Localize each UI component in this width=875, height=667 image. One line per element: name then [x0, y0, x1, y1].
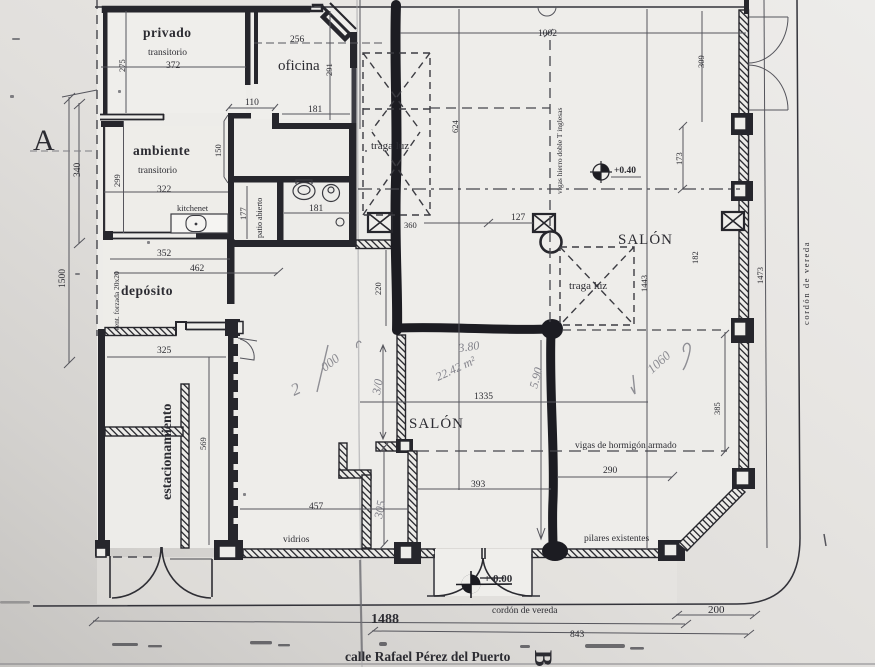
svg-text:transitorio: transitorio — [148, 48, 187, 58]
svg-text:127: 127 — [511, 213, 526, 223]
svg-text:ambiente: ambiente — [133, 143, 190, 158]
svg-text:estacionamiento: estacionamiento — [160, 404, 175, 500]
svg-text:322: 322 — [157, 185, 172, 195]
svg-text:309: 309 — [696, 55, 706, 68]
svg-text:256: 256 — [290, 35, 305, 45]
svg-text:vent. forzada 20x20: vent. forzada 20x20 — [112, 271, 121, 331]
svg-text:A: A — [33, 124, 55, 157]
svg-text:393: 393 — [471, 480, 486, 490]
svg-text:457: 457 — [309, 502, 324, 512]
svg-text:+ 0.00: + 0.00 — [484, 573, 513, 585]
svg-text:624: 624 — [450, 120, 460, 134]
svg-text:291: 291 — [324, 63, 334, 76]
svg-text:patio abierto: patio abierto — [255, 198, 264, 238]
svg-text:cordón de vereda: cordón de vereda — [492, 606, 558, 616]
svg-text:110: 110 — [245, 98, 259, 108]
svg-text:173: 173 — [674, 152, 684, 165]
svg-text:275: 275 — [117, 59, 127, 72]
svg-text:569: 569 — [198, 437, 208, 450]
svg-text:1488: 1488 — [371, 612, 399, 627]
svg-text:181: 181 — [309, 204, 324, 214]
svg-text:1002: 1002 — [538, 29, 557, 39]
svg-text:372: 372 — [166, 61, 181, 71]
svg-text:depósito: depósito — [121, 283, 173, 298]
svg-text:177: 177 — [238, 207, 248, 220]
svg-text:privado: privado — [143, 25, 192, 40]
svg-text:oficina: oficina — [278, 58, 320, 74]
svg-text:vigas hierro doble T inglesas: vigas hierro doble T inglesas — [555, 108, 564, 194]
svg-text:843: 843 — [570, 630, 585, 640]
svg-text:150: 150 — [213, 144, 223, 157]
svg-text:182: 182 — [690, 251, 700, 264]
svg-text:transitorio: transitorio — [138, 166, 177, 176]
svg-text:181: 181 — [308, 105, 323, 115]
svg-text:pilares existentes: pilares existentes — [584, 534, 649, 544]
svg-text:kitchenet: kitchenet — [177, 203, 209, 213]
svg-text:385: 385 — [712, 402, 722, 415]
svg-text:462: 462 — [190, 264, 205, 274]
svg-text:352: 352 — [157, 249, 172, 259]
svg-text:SALÓN: SALÓN — [618, 231, 673, 248]
svg-text:traga luz: traga luz — [569, 280, 607, 292]
svg-text:vigas de hormigón armado: vigas de hormigón armado — [575, 441, 677, 451]
svg-text:220: 220 — [373, 282, 383, 295]
svg-text:+0.40: +0.40 — [614, 166, 636, 176]
svg-text:299: 299 — [112, 174, 122, 187]
svg-text:1335: 1335 — [474, 392, 493, 402]
svg-text:1443: 1443 — [639, 275, 649, 292]
svg-text:B: B — [529, 650, 556, 667]
svg-text:traga luz: traga luz — [371, 140, 409, 152]
svg-text:calle Rafael Pérez del Puerto: calle Rafael Pérez del Puerto — [345, 649, 511, 664]
svg-text:340: 340 — [73, 163, 83, 178]
svg-text:SALÓN: SALÓN — [409, 415, 464, 432]
svg-text:360: 360 — [404, 220, 417, 230]
svg-text:1473: 1473 — [755, 267, 765, 284]
svg-text:3/0: 3/0 — [369, 378, 386, 397]
svg-text:290: 290 — [603, 466, 618, 476]
svg-text:200: 200 — [708, 604, 725, 616]
svg-text:vidrios: vidrios — [283, 535, 310, 545]
svg-text:cordón de vereda: cordón de vereda — [801, 241, 811, 325]
svg-text:1500: 1500 — [58, 269, 68, 288]
svg-text:325: 325 — [157, 346, 172, 356]
